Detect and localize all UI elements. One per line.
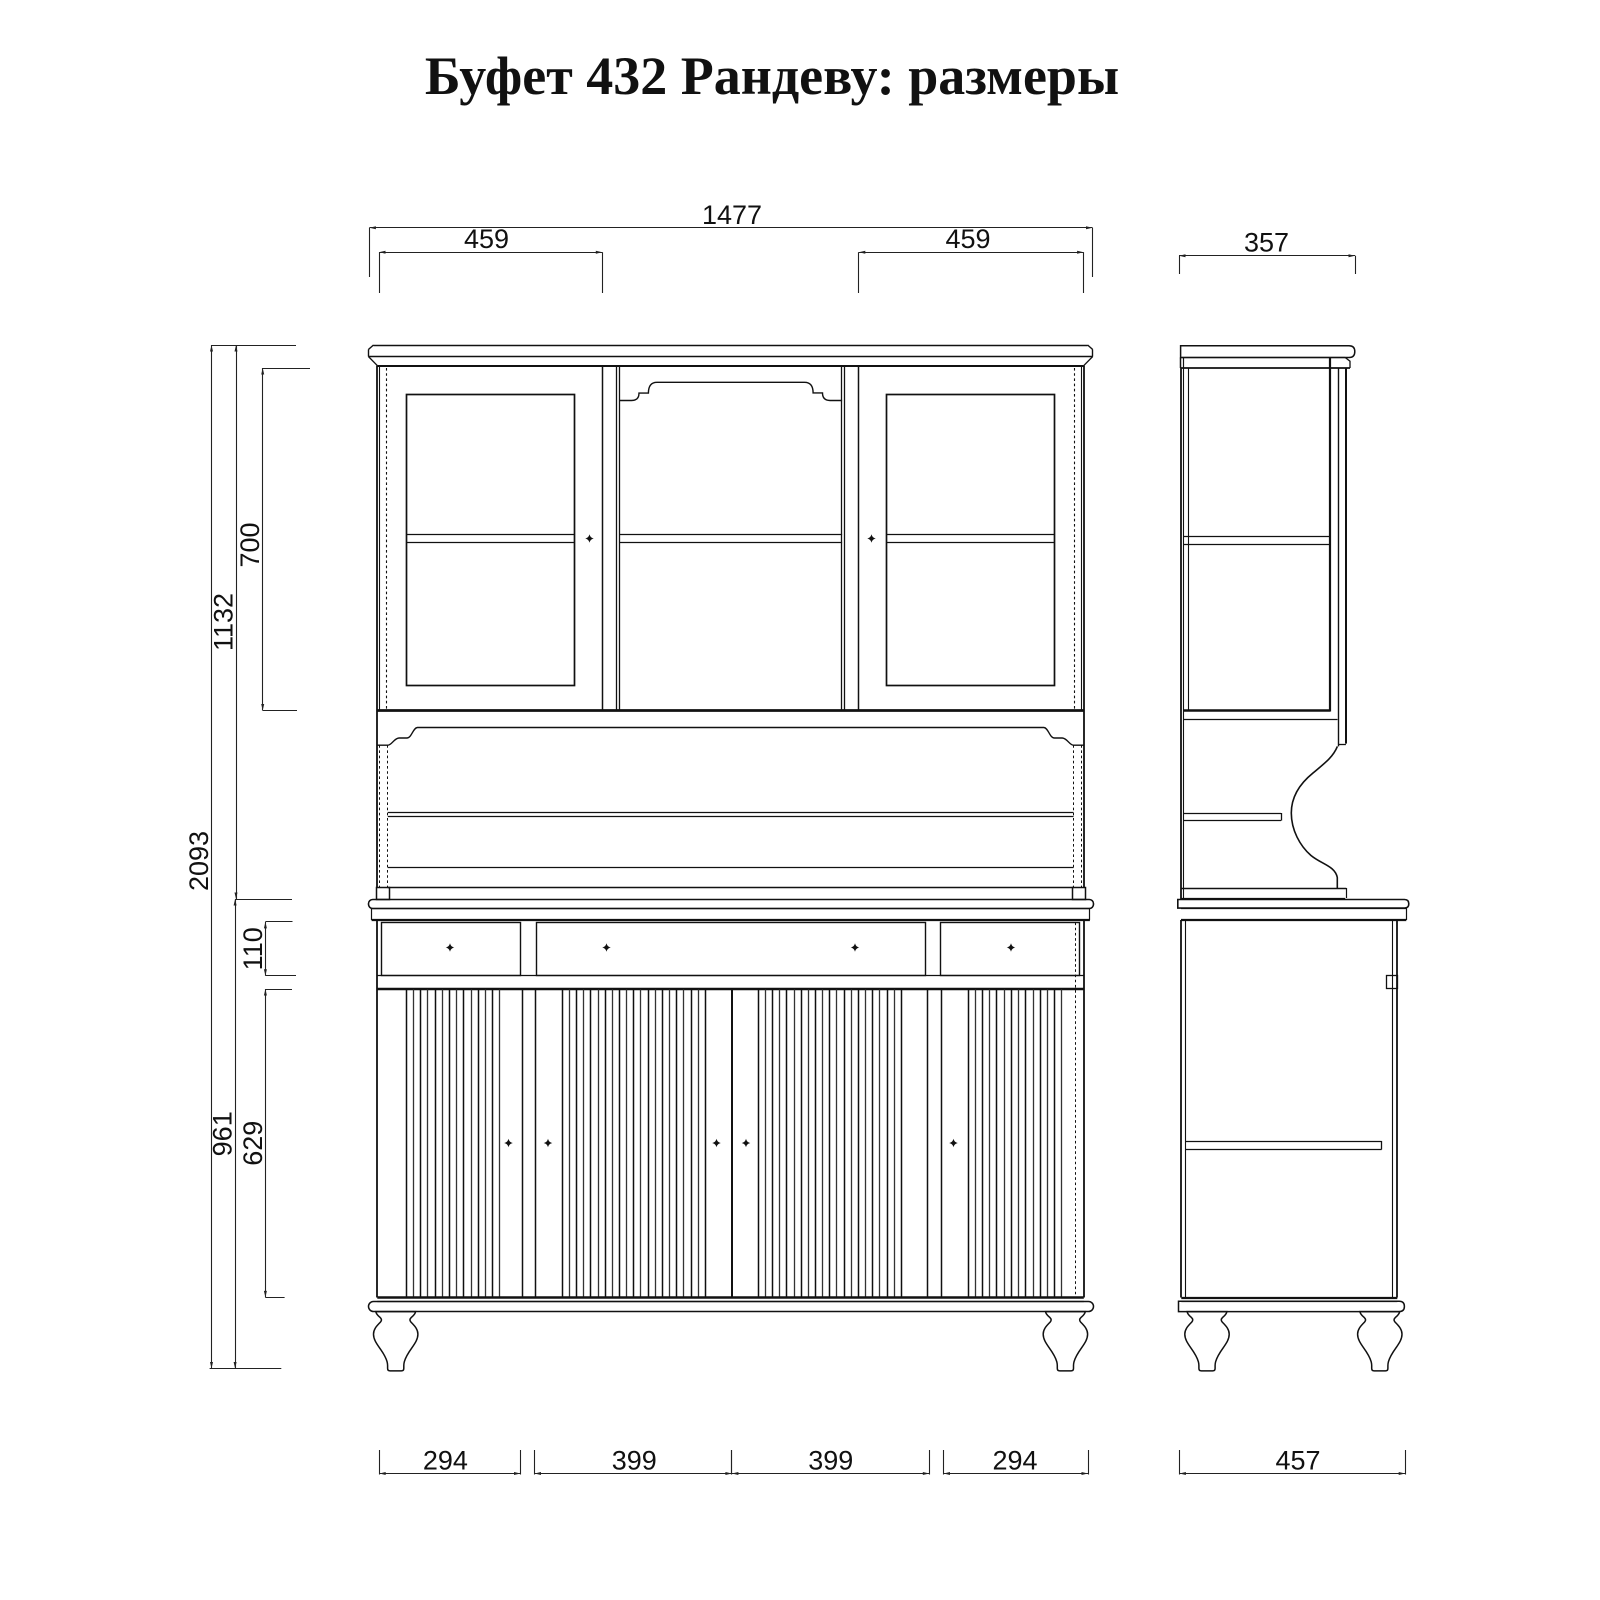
svg-text:2093: 2093 [184,831,214,891]
svg-text:459: 459 [464,224,509,254]
svg-text:961: 961 [208,1111,238,1156]
svg-text:459: 459 [945,224,990,254]
svg-text:Буфет 432 Рандеву: размеры: Буфет 432 Рандеву: размеры [425,46,1119,106]
svg-text:399: 399 [808,1446,853,1476]
svg-text:294: 294 [423,1446,468,1476]
svg-text:700: 700 [235,522,265,567]
svg-text:629: 629 [238,1121,268,1166]
svg-text:1132: 1132 [209,593,239,651]
svg-text:457: 457 [1275,1446,1320,1476]
svg-text:110: 110 [238,927,268,970]
svg-text:357: 357 [1244,228,1289,258]
svg-text:399: 399 [612,1446,657,1476]
svg-text:294: 294 [992,1446,1037,1476]
svg-text:1477: 1477 [702,200,762,230]
